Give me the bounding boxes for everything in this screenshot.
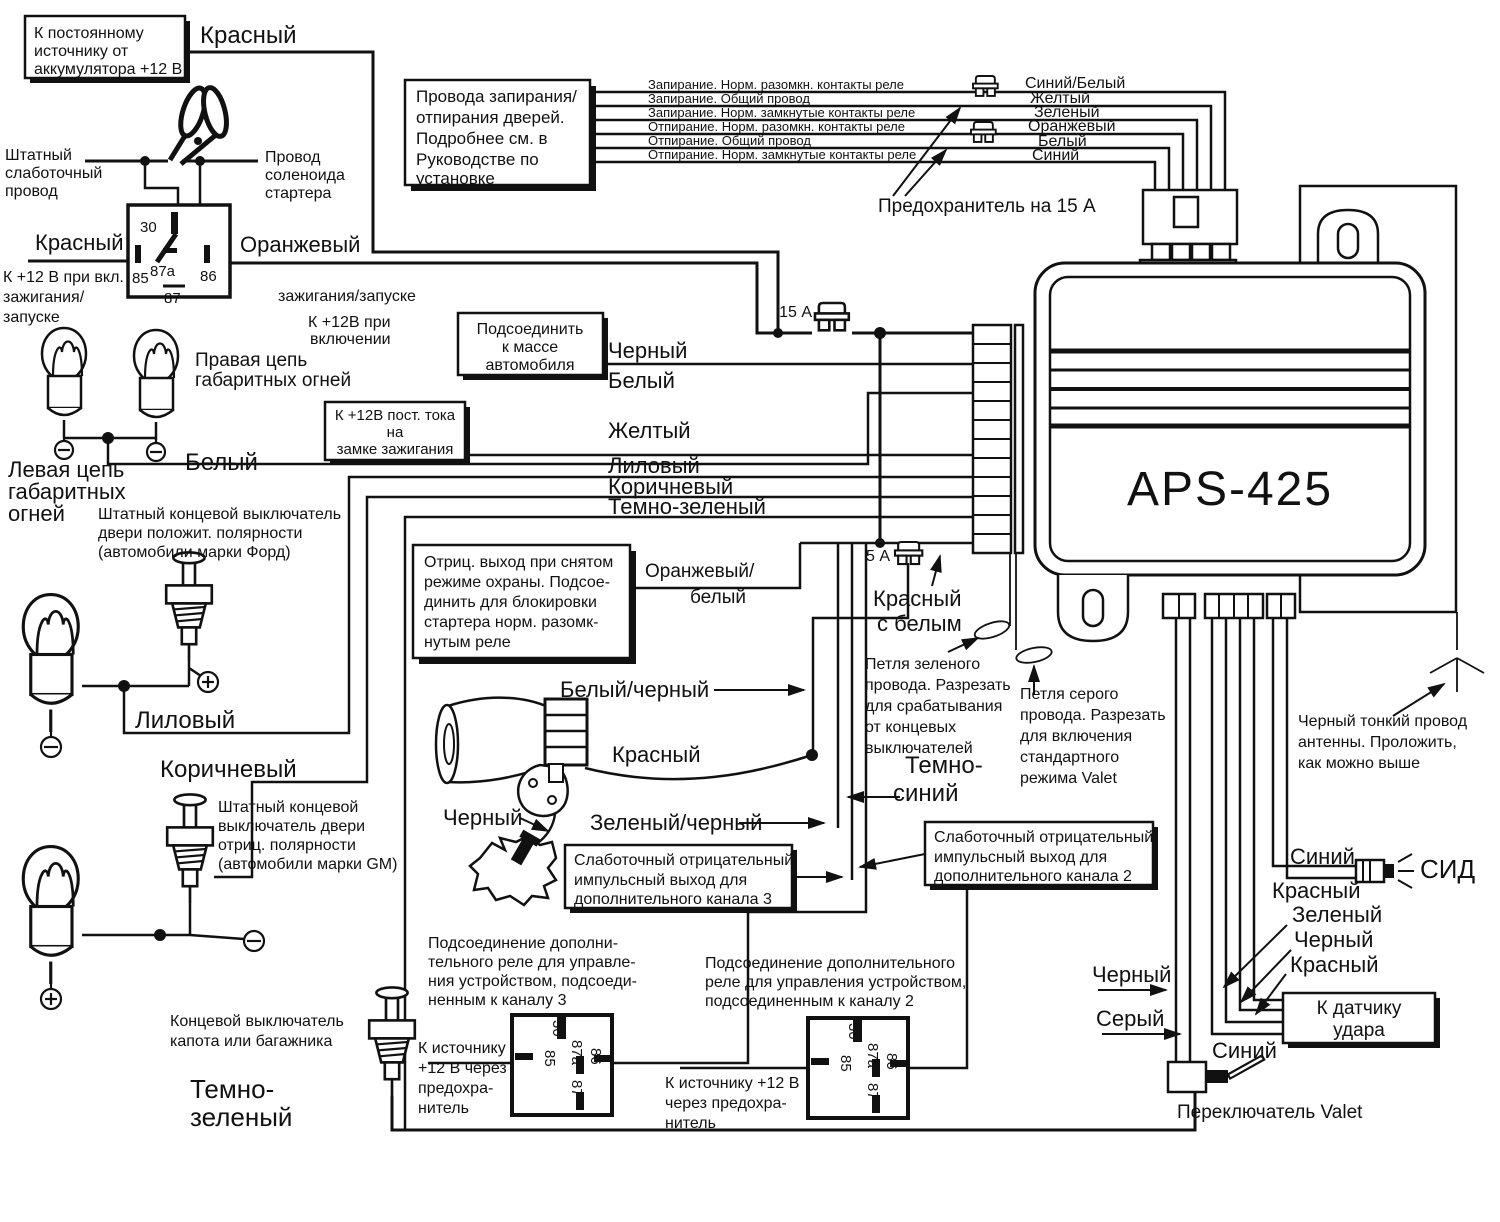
gm-door-switch: [167, 794, 213, 903]
relay-pin-87a: 87a: [150, 263, 176, 280]
antenna-arrow: [1393, 684, 1444, 716]
aux-relay-ch2: 30 87a 87 85 86: [808, 1018, 908, 1118]
neg-output-line: динить для блокировки: [424, 594, 597, 611]
label-orange-white: Оранжевый/: [645, 561, 755, 582]
siren-black-arrow: [520, 818, 548, 831]
lock-box: Провода запирания/ отпирания дверей. Под…: [405, 80, 596, 191]
wire-lock6: [590, 162, 1155, 190]
sub-connectors: [1163, 594, 1295, 618]
ch2-box: Слаботочный отрицательный импульсный вых…: [925, 822, 1158, 890]
label-yellow: Желтый: [608, 418, 691, 443]
note-relay2: реле для управления устройством,: [705, 974, 966, 991]
relay3-pin-87a: 87a: [568, 1040, 585, 1066]
lamp-right-1: [42, 328, 86, 438]
relay3-pin-30: 30: [549, 1020, 566, 1037]
label-red-top: Красный: [200, 22, 297, 49]
shock-box: К датчику удара: [1283, 993, 1440, 1048]
ch2-arrow: [860, 854, 925, 867]
note-loop-green: от концевых: [865, 719, 956, 736]
label-darkgreen-mid: Темно-зеленый: [608, 494, 766, 519]
label-white-mid: Белый: [608, 368, 675, 393]
label-red-white: с белым: [877, 611, 962, 636]
label-brown-left: Коричневый: [160, 756, 297, 783]
unit-tab-bottom-hole: [1083, 590, 1103, 626]
label-fuse15: Предохранитель на 15 А: [878, 196, 1096, 217]
lock-box-line: отпирания дверей.: [416, 108, 565, 127]
relay-pin-30: 30: [140, 219, 157, 236]
label-dark-blue: синий: [893, 780, 958, 807]
siren-icon: [436, 698, 587, 816]
label-shock-black: Черный: [1294, 927, 1373, 952]
relay3-pin-87: 87: [568, 1080, 585, 1097]
note-relay2-src: через предохра-: [665, 1095, 787, 1112]
lock-box-line: Подробнее см. в: [416, 129, 548, 148]
shock-red-arrow: [1256, 974, 1286, 1014]
lamp-left-2: [23, 847, 78, 985]
neg-output-line: стартера норм. разомк-: [424, 614, 598, 631]
ford-door-switch: [166, 552, 212, 661]
label-shock-green: Зеленый: [1292, 902, 1382, 927]
neg-output-line: нутым реле: [424, 634, 511, 651]
fuse-icon-15a: [815, 303, 849, 330]
note-antenna: антенны. Проложить,: [1298, 734, 1457, 751]
aps-425-wiring-diagram: APS-425: [0, 0, 1500, 1222]
note-ign-on2: зажигания/запуске: [278, 288, 416, 305]
ch3-line: дополнительного канала 3: [574, 891, 772, 908]
lock-wire-color: Синий: [1032, 147, 1079, 164]
ch3-line: импульсный выход для: [574, 872, 747, 889]
relay3-pin-85: 85: [541, 1050, 558, 1067]
ignition12-box: К +12В пост. тока на замке зажигания: [325, 402, 470, 465]
shock-line: К датчику: [1317, 998, 1402, 1019]
label-white-left: Белый: [185, 449, 258, 476]
label-lilac-left: Лиловый: [135, 707, 235, 734]
battery-box: К постоянному источнику от аккумулятора …: [25, 16, 190, 83]
note-solenoid: Провод: [265, 149, 321, 166]
note-relay2-src: нитель: [665, 1115, 716, 1132]
note-loop-green: Петля зеленого: [865, 656, 980, 673]
note-antenna: Черный тонкий провод: [1298, 713, 1468, 730]
lock-box-line: установке: [416, 169, 495, 188]
note-relay3: ния устройством, подсоеди-: [428, 973, 637, 990]
ignition12-line: замке зажигания: [337, 441, 454, 458]
neg-output-line: Отриц. выход при снятом: [424, 554, 613, 571]
label-orange: Оранжевый: [240, 232, 360, 257]
relay-pin-85: 85: [132, 270, 149, 287]
gray-wire-loop-icon: [1015, 644, 1053, 665]
ignition12-line: К +12В пост. тока: [335, 407, 456, 424]
note-ign-on: запуске: [3, 309, 60, 326]
shock-line: удара: [1333, 1020, 1385, 1041]
relay2-pin-86: 86: [883, 1053, 900, 1070]
ground-box-line: к массе: [502, 339, 558, 356]
ground-box: Подсоединить к массе автомобиля: [458, 313, 608, 380]
main-connector: [973, 325, 1023, 553]
aux-relay-ch3: 30 87a 87 85 86: [512, 1015, 612, 1115]
note-ign-on2: включении: [310, 331, 391, 348]
ground-box-line: автомобиля: [485, 357, 574, 374]
note-stock: провод: [5, 183, 58, 200]
label-valet-black: Черный: [1092, 962, 1171, 987]
lock-box-line: Руководстве по: [416, 150, 539, 169]
note-antenna: как можно выше: [1298, 755, 1420, 772]
note-hood: Концевой выключатель: [170, 1013, 344, 1030]
note-relay3: тельного реле для управле-: [428, 954, 636, 971]
label-siren-red: Красный: [612, 742, 701, 767]
note-ign-on: К +12 В при вкл.: [3, 269, 124, 286]
label-shock-red: Красный: [1290, 952, 1379, 977]
note-loop-green: провода. Разрезать: [865, 677, 1011, 694]
ch3-line: Слаботочный отрицательный: [574, 852, 793, 869]
note-relay3-src: нитель: [418, 1100, 469, 1117]
neg-output-line: режиме охраны. Подсое-: [424, 574, 610, 591]
label-valet-switch: Переключатель Valet: [1177, 1102, 1363, 1123]
note-loop-green: для срабатывания: [865, 698, 1002, 715]
relay2-pin-30: 30: [845, 1023, 862, 1040]
lock-wire-desc: Отпирание. Норм. замкнутые контакты реле: [648, 147, 916, 162]
battery-box-line: аккумулятора +12 В: [34, 61, 182, 78]
relay-pin-86: 86: [200, 268, 217, 285]
label-siren-black: Черный: [443, 805, 522, 830]
note-relay3: Подсоединение дополни-: [428, 935, 618, 952]
note-relay3-src: предохра-: [418, 1080, 493, 1097]
note-loop-gray: стандартного: [1020, 749, 1119, 766]
lock-wire-desc: Запирание. Общий провод: [648, 91, 810, 106]
note-solenoid: стартера: [265, 185, 332, 202]
ground-box-line: Подсоединить: [477, 321, 584, 338]
ch2-line: импульсный выход для: [934, 849, 1107, 866]
note-gm: выключатель двери: [218, 818, 365, 835]
label-darkgreen-left: Темно-: [190, 1074, 274, 1104]
note-stock: Штатный: [5, 147, 72, 164]
hood-switch: [369, 987, 415, 1096]
label-green-black: Зеленый/черный: [590, 810, 762, 835]
relay-pin-87: 87: [164, 290, 181, 307]
note-gm: Штатный концевой: [218, 799, 358, 816]
ignition12-line: на: [387, 424, 404, 441]
note-left-chain: огней: [8, 501, 65, 526]
label-5a: 5 А: [866, 548, 890, 565]
lamp-right-2: [134, 330, 178, 440]
note-stock: слаботочный: [5, 165, 102, 182]
ch2-line: Слаботочный отрицательный: [934, 829, 1153, 846]
relay2-pin-87: 87: [864, 1083, 881, 1100]
note-hood: капота или багажника: [170, 1033, 333, 1050]
note-relay3: ненным к каналу 3: [428, 992, 567, 1009]
battery-box-line: К постоянному: [34, 25, 144, 42]
wiring-diagram: APS-425: [0, 0, 1500, 1222]
note-ford: Штатный концевой выключатель: [98, 506, 341, 523]
note-relay3-src: К источнику: [418, 1040, 506, 1057]
relay2-pin-87a: 87a: [864, 1043, 881, 1069]
unit-tab-top-hole: [1338, 224, 1358, 258]
green-loop-arrow: [948, 638, 978, 652]
lamp-left-1: [23, 595, 78, 733]
pliers-icon: [170, 85, 231, 164]
lock-wire-desc: Отпирание. Общий провод: [648, 133, 811, 148]
note-loop-gray: Петля серого: [1020, 686, 1118, 703]
label-red-white: Красный: [873, 586, 962, 611]
note-ign-on: зажигания/: [3, 289, 85, 306]
note-right-chain: габаритных огней: [195, 370, 351, 391]
shock-green-arrow: [1224, 925, 1287, 987]
label-led-red: Красный: [1272, 878, 1361, 903]
red-white-arrow: [932, 556, 940, 586]
label-black-mid: Черный: [608, 338, 687, 363]
lock-wire-desc: Запирание. Норм. разомкн. контакты реле: [648, 77, 904, 92]
note-loop-gray: для включения: [1020, 728, 1132, 745]
note-ford: (автомобили марки Форд): [98, 544, 291, 561]
fuse-icon-unlock: [971, 122, 996, 142]
chassis-ground-icon: [470, 830, 556, 905]
note-relay3-src: +12 В через: [418, 1060, 507, 1077]
note-loop-gray: провода. Разрезать: [1020, 707, 1166, 724]
note-relay2: Подсоединение дополнительного: [705, 955, 955, 972]
lock-box-line: Провода запирания/: [416, 87, 577, 106]
unit-model-label: APS-425: [1127, 463, 1333, 516]
label-darkgreen-left: зеленый: [190, 1102, 292, 1132]
note-right-chain: Правая цепь: [195, 350, 307, 371]
label-valet-gray: Серый: [1096, 1006, 1164, 1031]
label-15a: 15 А: [779, 304, 812, 321]
ch2-line: дополнительного канала 2: [934, 868, 1132, 885]
label-white-black: Белый/черный: [560, 677, 709, 702]
label-led-blue: Синий: [1290, 844, 1355, 869]
neg-output-box: Отриц. выход при снятом режиме охраны. П…: [413, 545, 636, 664]
fuse-icon-5a: [895, 542, 922, 564]
battery-box-line: источнику от: [34, 43, 129, 60]
label-valet-blue: Синий: [1212, 1038, 1277, 1063]
lock-wire-desc: Запирание. Норм. замкнутые контакты реле: [648, 105, 915, 120]
note-solenoid: соленоида: [265, 167, 345, 184]
led-icon: [1356, 854, 1414, 888]
green-wire-loop-icon: [973, 618, 1012, 642]
note-ford: двери положит. полярности: [98, 525, 302, 542]
relay2-pin-85: 85: [837, 1055, 854, 1072]
note-relay2-src: К источнику +12 В: [665, 1075, 799, 1092]
note-gm: отриц. полярности: [218, 837, 356, 854]
note-relay2: подсоединенным к каналу 2: [705, 993, 914, 1010]
label-orange-white: белый: [690, 587, 746, 608]
relay3-pin-86: 86: [587, 1048, 604, 1065]
lock-wire-desc: Отпирание. Норм. разомкн. контакты реле: [648, 119, 905, 134]
wire-ford-plus: [189, 668, 201, 676]
label-led: СИД: [1420, 854, 1475, 884]
starter-relay: 30 87a 85 86 87: [128, 205, 230, 307]
label-red-ign: Красный: [35, 230, 124, 255]
alarm-unit: APS-425: [1035, 263, 1425, 575]
note-loop-gray: режима Valet: [1020, 770, 1117, 787]
ch3-box: Слаботочный отрицательный импульсный вых…: [565, 845, 797, 913]
label-dark-blue: Темно-: [905, 752, 983, 779]
note-ign-on2: К +12В при: [308, 314, 391, 331]
note-gm: (автомобили марки GM): [218, 856, 397, 873]
